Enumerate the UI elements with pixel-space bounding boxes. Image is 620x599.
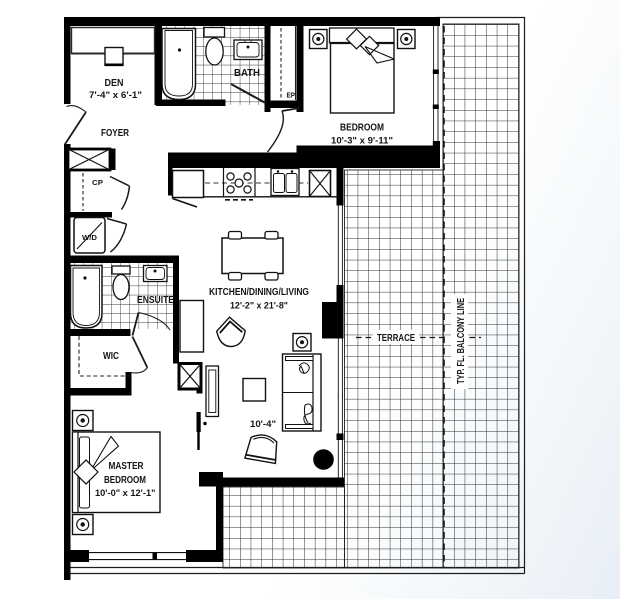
svg-text:10'-0" x 12'-1": 10'-0" x 12'-1" xyxy=(95,488,156,498)
svg-text:10'-3" x 9'-11": 10'-3" x 9'-11" xyxy=(331,136,393,146)
svg-text:DEN: DEN xyxy=(105,78,124,89)
svg-text:EP: EP xyxy=(287,93,296,100)
svg-text:CP: CP xyxy=(92,178,103,187)
svg-text:FOYER: FOYER xyxy=(101,128,130,139)
svg-text:ENSUITE: ENSUITE xyxy=(137,295,174,306)
svg-text:BATH: BATH xyxy=(234,68,260,79)
svg-text:WIC: WIC xyxy=(103,351,120,362)
svg-text:W/D: W/D xyxy=(82,233,97,242)
svg-text:10'-4": 10'-4" xyxy=(250,419,276,429)
svg-text:7'-4" x 6'-1": 7'-4" x 6'-1" xyxy=(89,90,142,100)
svg-text:BEDROOM: BEDROOM xyxy=(340,123,384,134)
svg-text:MASTER: MASTER xyxy=(109,461,145,472)
svg-text:TERRACE: TERRACE xyxy=(377,333,415,344)
svg-text:12'-2" x 21'-8": 12'-2" x 21'-8" xyxy=(230,301,288,311)
svg-text:TYP. FL. BALCONY LINE: TYP. FL. BALCONY LINE xyxy=(455,298,467,384)
svg-text:BEDROOM: BEDROOM xyxy=(104,475,146,486)
svg-text:KITCHEN/DINING/LIVING: KITCHEN/DINING/LIVING xyxy=(209,287,309,298)
